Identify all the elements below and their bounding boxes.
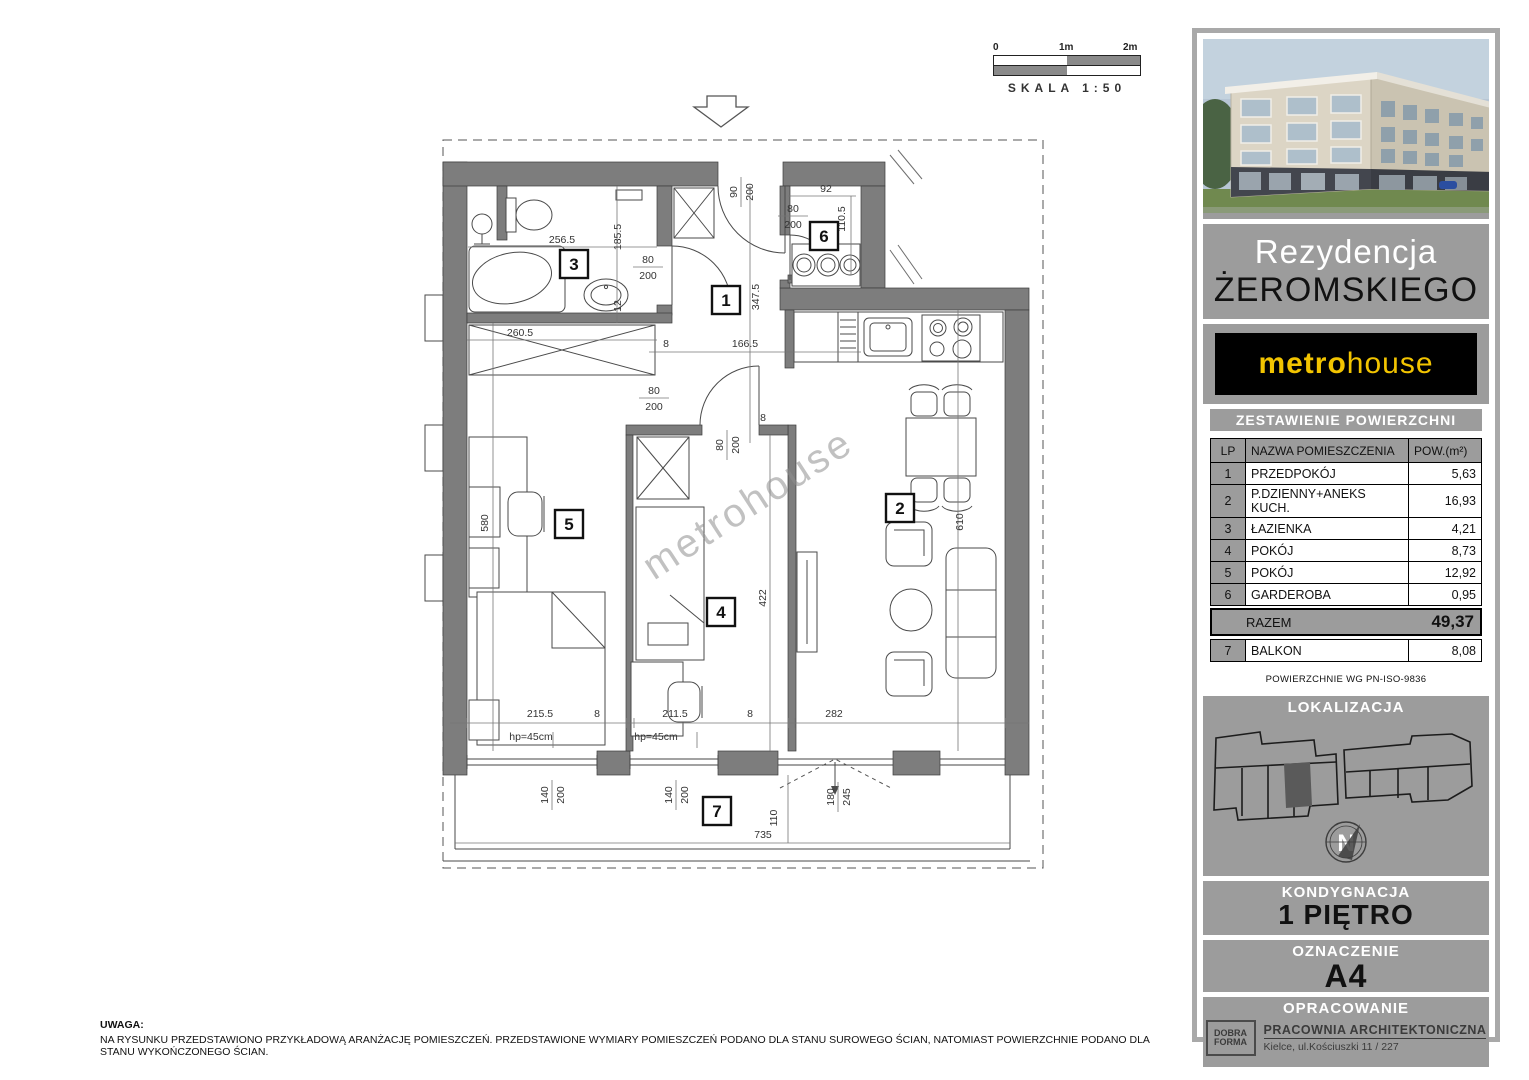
dimension-label: 580 — [479, 514, 491, 532]
areas-table-row: 1PRZEDPOKÓJ5,63 — [1211, 463, 1482, 485]
dimension-label: 8 — [760, 412, 766, 424]
bathtub-icon — [468, 245, 565, 312]
svg-text:6: 6 — [819, 227, 828, 246]
svg-text:1: 1 — [721, 291, 730, 310]
svg-text:80: 80 — [787, 203, 799, 215]
balcony — [443, 775, 1030, 861]
toilet-icon — [506, 198, 552, 232]
unit-section: OZNACZENIE A4 — [1203, 940, 1489, 992]
project-title-line2: ŻEROMSKIEGO — [1214, 271, 1478, 310]
dimension-label: 8 — [594, 708, 600, 720]
small-sink-icon — [472, 214, 492, 244]
room-label: 6 — [810, 222, 838, 250]
col-lp: LP — [1211, 439, 1246, 463]
project-title-block: Rezydencja ŻEROMSKIEGO — [1203, 224, 1489, 319]
dimension-label: hp=45cm — [634, 731, 678, 743]
scale-label-1m: 1m — [1059, 42, 1073, 53]
svg-text:200: 200 — [555, 786, 567, 804]
wardrobe-hall — [674, 188, 714, 238]
areas-title: ZESTAWIENIE POWIERZCHNI — [1210, 409, 1482, 431]
dimension-label: 422 — [757, 589, 769, 607]
building-photo — [1203, 39, 1489, 219]
dimension-label: 610 — [954, 513, 966, 531]
unit-value: A4 — [1325, 960, 1368, 992]
dimension-label: 8 — [747, 708, 753, 720]
svg-text:2: 2 — [895, 499, 904, 518]
dimension-fraction: 80200 — [639, 385, 669, 413]
areas-table-row: 3ŁAZIENKA4,21 — [1211, 518, 1482, 540]
dining-table — [906, 385, 976, 511]
svg-text:200: 200 — [639, 270, 657, 282]
neighbour-stubs — [425, 295, 443, 601]
svg-text:5: 5 — [564, 515, 573, 534]
areas-table: LP NAZWA POMIESZCZENIA POW.(m²) 1PRZEDPO… — [1210, 438, 1482, 606]
svg-text:140: 140 — [539, 786, 551, 804]
sofa — [946, 548, 996, 678]
svg-text:80: 80 — [714, 439, 726, 451]
scale-label-0: 0 — [993, 42, 999, 53]
areas-table-row: 4POKÓJ8,73 — [1211, 540, 1482, 562]
dimension-label: 735 — [754, 829, 772, 841]
total-value: 49,37 — [1431, 612, 1474, 632]
dimension-fraction: 180245 — [825, 782, 853, 812]
svg-text:245: 245 — [841, 788, 853, 806]
room-label: 4 — [707, 598, 735, 626]
balkon-value: 8,08 — [1409, 640, 1482, 662]
note-body: NA RYSUNKU PRZEDSTAWIONO PRZYKŁADOWĄ ARA… — [100, 1034, 1180, 1058]
dimension-label: 211.5 — [662, 708, 688, 720]
svg-text:200: 200 — [784, 219, 802, 231]
dimension-fraction: 80200 — [714, 430, 742, 460]
svg-text:200: 200 — [730, 436, 742, 454]
dimension-label: 215.5 — [527, 708, 553, 720]
svg-text:200: 200 — [679, 786, 691, 804]
svg-text:200: 200 — [645, 401, 663, 413]
dimension-label: 282 — [825, 708, 843, 720]
dimension-label: hp=45cm — [509, 731, 553, 743]
floor-plan: metrohouse 256.5185.512260.5580347.58166… — [420, 85, 1060, 875]
stove-icon — [922, 315, 980, 361]
dimension-fraction: 90200 — [728, 177, 756, 207]
dimension-label: 260.5 — [507, 327, 533, 339]
svg-text:3: 3 — [569, 255, 578, 274]
wardrobe-room5 — [469, 325, 655, 375]
brand-part1: metro — [1258, 347, 1346, 380]
entrance-arrow-icon — [694, 96, 748, 127]
dimension-label: 166.5 — [732, 338, 758, 350]
svg-text:180: 180 — [825, 788, 837, 806]
studio-name: PRACOWNIA ARCHITEKTONICZNA — [1264, 1023, 1487, 1039]
page: { "scale_bar": {"label_0":"0","label_1":… — [0, 0, 1529, 1080]
dimension-label: 12 — [612, 300, 624, 312]
areas-table-row: 6GARDEROBA0,95 — [1211, 584, 1482, 606]
dobra-forma-logo: DOBRA FORMA — [1206, 1020, 1256, 1056]
areas-section: ZESTAWIENIE POWIERZCHNI LP NAZWA POMIESZ… — [1203, 409, 1489, 691]
svg-text:80: 80 — [648, 385, 660, 397]
scale-label-2m: 2m — [1123, 42, 1137, 53]
armchair-2 — [886, 652, 932, 696]
highlighted-unit — [1284, 762, 1312, 808]
studio-address: Kielce, ul.Kościuszki 11 / 227 — [1264, 1041, 1487, 1053]
svg-text:7: 7 — [712, 802, 721, 821]
brand-part2: house — [1347, 347, 1434, 380]
svg-text:80: 80 — [642, 254, 654, 266]
location-section: LOKALIZACJA N — [1203, 696, 1489, 876]
room-label: 5 — [555, 510, 583, 538]
svg-text:140: 140 — [663, 786, 675, 804]
desk-room4 — [631, 662, 702, 736]
dimension-fraction: 140200 — [539, 780, 567, 810]
svg-text:90: 90 — [728, 186, 740, 198]
dimension-label: 347.5 — [750, 284, 762, 310]
metrohouse-logo: metrohouse — [1215, 333, 1477, 395]
balkon-name: BALKON — [1246, 640, 1409, 662]
balkon-lp: 7 — [1211, 640, 1246, 662]
dimension-fraction: 140200 — [663, 780, 691, 810]
total-label: RAZEM — [1246, 615, 1431, 630]
dimension-fraction: 80200 — [633, 254, 663, 282]
disclaimer-note: UWAGA: NA RYSUNKU PRZEDSTAWIONO PRZYKŁAD… — [100, 1019, 1180, 1058]
room-label: 1 — [712, 286, 740, 314]
kitchen-sink-icon — [864, 318, 912, 356]
dimension-label: 8 — [663, 338, 669, 350]
dimension-label: 256.5 — [549, 234, 575, 246]
room-label: 2 — [886, 494, 914, 522]
compass-icon: N — [1326, 822, 1366, 862]
areas-table-row: 5POKÓJ12,92 — [1211, 562, 1482, 584]
df-line2: FORMA — [1214, 1038, 1247, 1047]
areas-table-row: 2P.DZIENNY+ANEKS KUCH.16,93 — [1211, 485, 1482, 518]
dimension-label: 110 — [768, 809, 780, 826]
areas-footnote: POWIERZCHNIE WG PN-ISO-9836 — [1266, 674, 1427, 685]
floor-section: KONDYGNACJA 1 PIĘTRO — [1203, 881, 1489, 935]
room-label: 7 — [703, 797, 731, 825]
dimension-label: 185.5 — [612, 224, 624, 250]
author-title: OPRACOWANIE — [1283, 1000, 1409, 1017]
col-area: POW.(m²) — [1409, 439, 1482, 463]
scale-bar-graphic — [993, 55, 1141, 76]
project-title-line1: Rezydencja — [1255, 233, 1437, 271]
svg-text:4: 4 — [716, 603, 726, 622]
dimension-label: 92 — [820, 183, 832, 195]
author-section: OPRACOWANIE DOBRA FORMA PRACOWNIA ARCHIT… — [1203, 997, 1489, 1067]
sidebar: Rezydencja ŻEROMSKIEGO metrohouse ZESTAW… — [1192, 28, 1500, 1042]
tv-cabinet — [797, 552, 817, 652]
col-name: NAZWA POMIESZCZENIA — [1246, 439, 1409, 463]
areas-table-header: LP NAZWA POMIESZCZENIA POW.(m²) — [1211, 439, 1482, 463]
wardrobe-room4 — [637, 437, 689, 499]
floor-value: 1 PIĘTRO — [1278, 901, 1414, 929]
coffee-table — [890, 589, 932, 631]
brand-section: metrohouse — [1203, 324, 1489, 404]
room-label: 3 — [560, 250, 588, 278]
balkon-table: 7 BALKON 8,08 — [1210, 639, 1482, 662]
balkon-row: 7 BALKON 8,08 — [1211, 640, 1482, 662]
svg-text:200: 200 — [744, 183, 756, 201]
location-map: N — [1202, 716, 1490, 868]
armchair-1 — [886, 522, 932, 566]
total-row: RAZEM 49,37 — [1210, 608, 1482, 636]
stair-hints — [890, 150, 922, 284]
bathroom-shelf — [616, 190, 642, 200]
note-title: UWAGA: — [100, 1019, 1180, 1031]
location-title: LOKALIZACJA — [1288, 699, 1405, 716]
areas-table-body: LP NAZWA POMIESZCZENIA POW.(m²) 1PRZEDPO… — [1211, 439, 1482, 606]
